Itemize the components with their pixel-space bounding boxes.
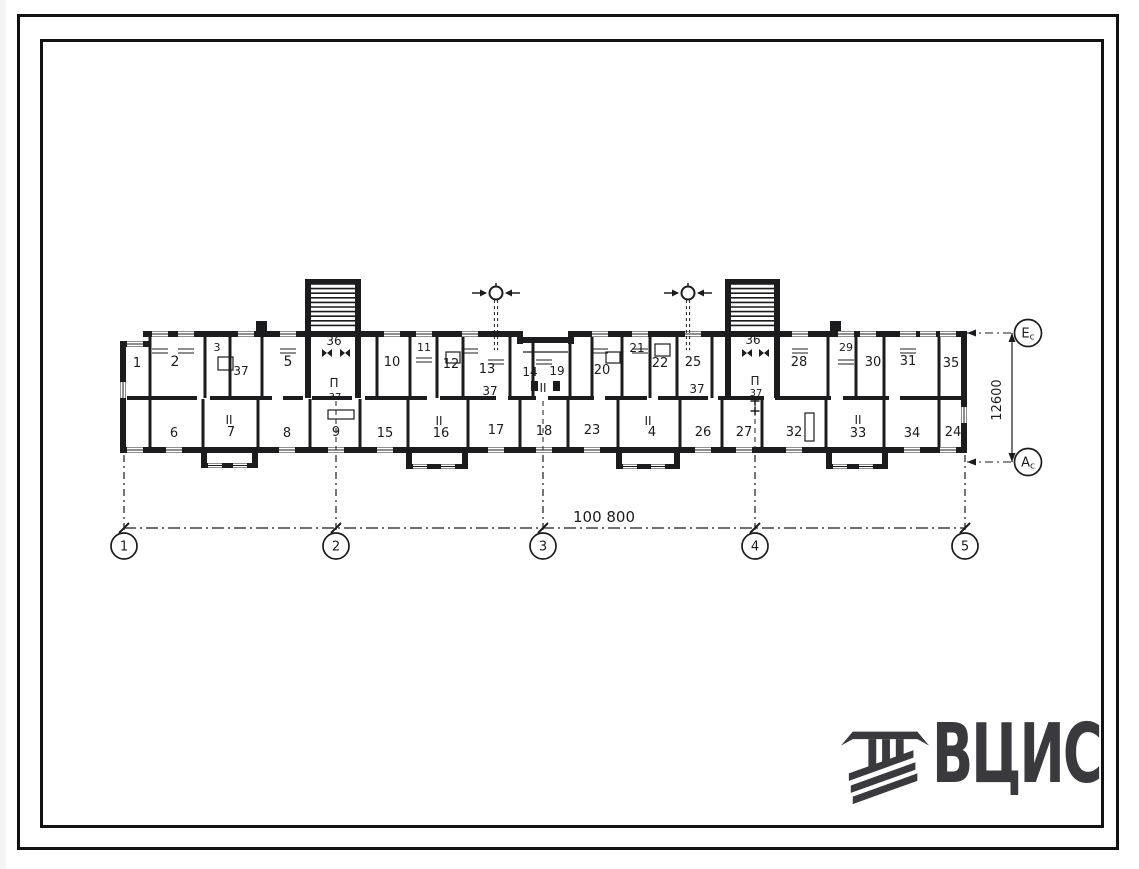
room-label-П: П (329, 376, 338, 390)
corridor-wall (843, 396, 889, 400)
room-label-1: 1 (133, 356, 141, 371)
partition-wall (761, 399, 764, 453)
wall (355, 279, 361, 337)
vent-stack-icon (490, 287, 503, 300)
room-label-2: 2 (171, 354, 180, 370)
partition-wall (149, 399, 152, 453)
door-mark (759, 349, 764, 357)
partition-wall (825, 399, 828, 453)
fixture-outline (328, 410, 354, 419)
partition-wall (883, 399, 886, 453)
partition-wall (462, 337, 465, 398)
drawing-sheet: 100 80012345EcAc126001233753610111213371… (0, 0, 1139, 869)
wall (774, 279, 780, 337)
partition-wall (721, 399, 724, 453)
door-mark (322, 349, 327, 357)
door-mark (742, 349, 747, 357)
partition-wall (407, 399, 410, 453)
partition-wall (679, 399, 682, 453)
partition-wall (519, 399, 522, 453)
axis-label-5: 5 (961, 540, 969, 555)
wall (830, 321, 841, 332)
room-label-32: 32 (786, 425, 803, 440)
axis-label-1: 1 (120, 540, 128, 555)
door-mark (747, 349, 752, 357)
room-label-34: 34 (904, 426, 921, 441)
room-label-22: 22 (652, 356, 669, 371)
corridor-wall (900, 396, 961, 400)
room-label-37: 37 (233, 364, 248, 378)
partition-wall (257, 399, 260, 453)
room-label-16: 16 (433, 426, 450, 441)
room-label-18: 18 (536, 424, 553, 439)
wall (961, 331, 967, 453)
lead-arrowhead (967, 459, 976, 466)
partition-wall (621, 337, 624, 398)
corridor-wall (658, 396, 708, 400)
partition-wall (359, 399, 362, 453)
room-label-20: 20 (594, 363, 611, 378)
vent-arrowhead (480, 290, 487, 297)
partition-wall (309, 399, 312, 453)
room-label-17: 17 (488, 423, 505, 438)
room-label-37: 37 (482, 384, 497, 398)
room-label-24: 24 (945, 425, 962, 440)
axis-label-Ac: Ac (1021, 456, 1035, 472)
partition-wall (509, 337, 512, 398)
axis-label-2: 2 (332, 540, 340, 555)
room-label-33: 33 (850, 426, 867, 441)
partition-wall (467, 399, 470, 453)
partition-wall (567, 399, 570, 453)
room-label-31: 31 (900, 354, 917, 369)
room-label-28: 28 (791, 355, 808, 370)
wall (355, 337, 361, 398)
room-label-П: П (750, 374, 759, 388)
partition-wall (229, 337, 232, 398)
partition-wall (938, 399, 941, 453)
partition-wall (409, 337, 412, 398)
room-label-II: II (539, 381, 546, 395)
partition-wall (261, 337, 264, 398)
dimension-text-horizontal: 100 800 (573, 508, 635, 526)
door-mark (327, 349, 332, 357)
room-label-14: 14 (522, 365, 537, 379)
wall (517, 337, 574, 343)
wall (774, 337, 780, 398)
door-mark (764, 349, 769, 357)
corridor-wall (127, 396, 197, 400)
corridor-wall (283, 396, 303, 400)
room-label-35: 35 (943, 356, 960, 371)
wall (256, 321, 267, 332)
partition-wall (617, 399, 620, 453)
lead-arrowhead (967, 330, 976, 337)
wall (305, 337, 311, 398)
partition-wall (938, 337, 941, 398)
axis-label-Ec: Ec (1021, 327, 1034, 343)
vent-stack-icon (682, 287, 695, 300)
axis-label-3: 3 (539, 540, 547, 555)
logo-text: ВЦИС (932, 714, 1101, 796)
room-label-II: II (644, 414, 651, 428)
room-label-11: 11 (417, 341, 431, 354)
partition-wall (436, 337, 439, 398)
dimension-text-vertical: 12600 (990, 379, 1005, 420)
room-label-7: 7 (227, 425, 235, 440)
vcis-logo: ВЦИС (838, 712, 1098, 812)
room-label-37: 37 (329, 392, 342, 403)
door-mark (340, 349, 345, 357)
room-label-29: 29 (839, 341, 853, 354)
room-label-23: 23 (584, 423, 601, 438)
partition-wall (204, 337, 207, 398)
room-label-21: 21 (629, 341, 644, 355)
partition-wall (569, 337, 572, 398)
room-label-12: 12 (443, 357, 460, 372)
room-label-8: 8 (283, 426, 291, 441)
partition-wall (376, 337, 379, 398)
partition-wall (149, 337, 152, 398)
room-label-37: 37 (689, 382, 704, 396)
room-label-15: 15 (377, 426, 394, 441)
vent-arrowhead (672, 290, 679, 297)
room-label-3: 3 (214, 341, 221, 354)
partition-wall (202, 399, 205, 453)
corridor-wall (605, 396, 647, 400)
partition-wall (855, 337, 858, 398)
vent-arrowhead (505, 290, 512, 297)
partition-wall (883, 337, 886, 398)
construction-monogram-icon (841, 727, 934, 805)
fixture-outline (655, 344, 670, 356)
room-label-10: 10 (384, 355, 401, 370)
room-label-5: 5 (284, 354, 293, 370)
fixture-outline (606, 352, 620, 363)
room-label-13: 13 (479, 362, 496, 377)
room-label-II: II (854, 413, 861, 427)
partition-wall (827, 337, 830, 398)
wall (305, 279, 361, 284)
partition-wall (676, 337, 679, 398)
room-label-9: 9 (332, 425, 340, 440)
wall (725, 279, 731, 337)
room-label-19: 19 (549, 364, 564, 378)
corridor-wall (365, 396, 427, 400)
partition-wall (711, 337, 714, 398)
room-label-30: 30 (865, 355, 882, 370)
room-label-37: 37 (750, 388, 763, 399)
room-label-36: 36 (745, 333, 760, 347)
corridor-wall (775, 396, 831, 400)
room-label-25: 25 (685, 355, 702, 370)
vent-arrowhead (697, 290, 704, 297)
room-label-27: 27 (736, 425, 753, 440)
axis-label-4: 4 (751, 540, 759, 555)
room-label-II: II (435, 414, 442, 428)
door-mark (345, 349, 350, 357)
wall (725, 279, 780, 284)
room-label-36: 36 (326, 334, 341, 348)
fixture-outline (805, 413, 814, 441)
room-label-26: 26 (695, 425, 712, 440)
room-label-6: 6 (170, 426, 178, 441)
room-label-II: II (225, 413, 232, 427)
wall (305, 279, 311, 337)
wall (725, 337, 731, 398)
wall (553, 381, 560, 391)
